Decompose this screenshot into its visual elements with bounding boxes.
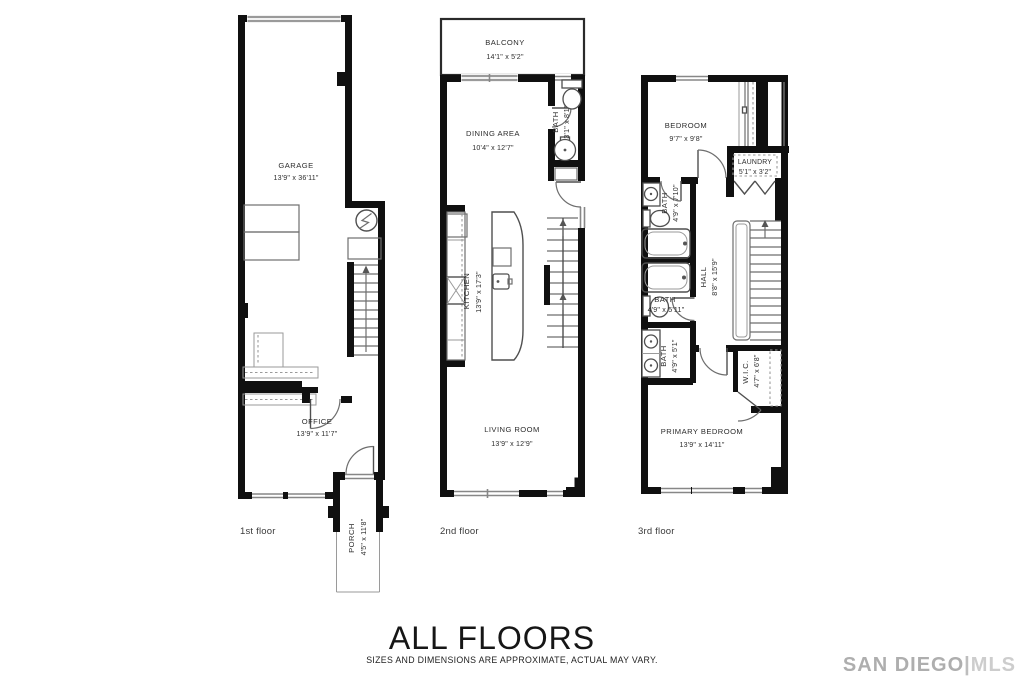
front-door-arc: [346, 446, 374, 474]
disclaimer-text: SIZES AND DIMENSIONS ARE APPROXIMATE, AC…: [366, 655, 658, 665]
bifold-doors-icon: [734, 181, 775, 194]
wall-notch: [337, 72, 349, 86]
living-room-dims: 13'9" x 12'9": [491, 440, 533, 448]
sink-icon: [555, 137, 576, 161]
watermark-suffix: MLS: [971, 654, 1016, 676]
window-opening: [288, 491, 325, 500]
window-opening: [661, 486, 691, 495]
bath-middle-room-dims: 4'9" x 5'11": [648, 306, 685, 314]
title-block: ALL FLOORS SIZES AND DIMENSIONS ARE APPR…: [366, 620, 658, 665]
hall-room-label: HALL: [699, 267, 708, 288]
closet-sliding-doors: [739, 82, 753, 146]
dining-area-room-label: DINING AREA: [466, 129, 520, 138]
window-opening: [454, 489, 519, 498]
sink-icon: [643, 183, 660, 206]
window-opening: [547, 489, 563, 498]
garage-room-dims: 13'9" x 36'11": [273, 174, 318, 182]
bedroom-room-dims: 9'7" x 9'8": [669, 135, 702, 143]
porch-structure: [328, 472, 389, 592]
balcony-room-dims: 14'1" x 5'2": [486, 53, 524, 61]
island-sink-icon: [493, 274, 512, 289]
double-vanity-icon: [642, 330, 660, 377]
first-floor-label: 1st floor: [240, 526, 276, 537]
toilet-icon: [562, 80, 582, 109]
staircase: [544, 218, 578, 348]
hall-room-dims: 8'8" x 15'9": [711, 258, 719, 296]
first-floor-plan: GARAGE 13'9" x 36'11" OFFICE 13'9" x 11'…: [240, 14, 389, 592]
page-title: ALL FLOORS: [389, 620, 595, 656]
door-opening: [578, 181, 587, 207]
primary-bedroom-door-arc: [700, 348, 727, 375]
linen-closet: [555, 168, 577, 180]
floor-plan-canvas: GARAGE 13'9" x 36'11" OFFICE 13'9" x 11'…: [0, 0, 1024, 683]
window-opening: [745, 486, 762, 495]
porch-room-label: PORCH: [347, 523, 356, 553]
exterior-recess: [768, 82, 782, 146]
water-heater-icon: [356, 210, 377, 231]
garage-room-label: GARAGE: [278, 161, 313, 170]
dining-area-room-dims: 10'4" x 12'7": [472, 144, 514, 152]
front-door-opening: [345, 472, 375, 481]
window-opening: [676, 74, 708, 83]
wall-corner-block: [771, 467, 782, 492]
bath-upper-room-label: BATH: [660, 192, 669, 214]
storage-cabinets: [244, 205, 299, 260]
bedroom-door-arc: [698, 150, 726, 178]
entry-closet: [348, 238, 381, 259]
kitchen-room-dims: 13'9" x 17'3": [475, 271, 483, 313]
balcony-walls: [441, 19, 584, 75]
primary-bedroom-room-label: PRIMARY BEDROOM: [661, 427, 743, 436]
third-floor-plan: BEDROOM 9'7" x 9'8" LAUNDRY 5'1" x 3'2" …: [638, 74, 789, 537]
window-opening: [252, 491, 283, 500]
bath-lower-room-dims: 4'9" x 5'1": [671, 339, 679, 372]
laundry-room-dims: 5'1" x 3'2": [739, 169, 772, 176]
bedroom-room-label: BEDROOM: [665, 121, 707, 130]
bath-room-dims: 3'1" x 8'1": [563, 105, 571, 138]
door-opening: [689, 297, 697, 321]
office-room-label: OFFICE: [302, 417, 333, 426]
bath-upper-room-dims: 4'9" x 7'10": [672, 184, 680, 222]
second-floor-plan: BALCONY 14'1" x 5'2" DINING AREA 10'4" x…: [440, 19, 587, 537]
window-opening: [692, 486, 733, 495]
office-room-dims: 13'9" x 11'7": [297, 430, 338, 438]
second-floor-label: 2nd floor: [440, 526, 479, 537]
watermark-prefix: SAN DIEGO: [843, 654, 964, 676]
bath-middle-room-label: BATH: [654, 295, 676, 304]
kitchen-island: [492, 212, 523, 360]
balcony-room-label: BALCONY: [485, 38, 524, 47]
mls-watermark: SAN DIEGO|MLS: [843, 654, 1016, 676]
interior-wall: [693, 345, 699, 352]
door-opening: [660, 176, 681, 185]
wic-room-dims: 4'7" x 6'8": [753, 354, 761, 387]
living-room-label: LIVING ROOM: [484, 425, 540, 434]
kitchen-room-label: KITCHEN: [462, 273, 471, 309]
wic-shelf: [770, 350, 781, 406]
third-floor-label: 3rd floor: [638, 526, 675, 537]
stair-up-arrow: [363, 266, 370, 274]
laundry-room-label: LAUNDRY: [738, 159, 772, 166]
bathtub-icon: [642, 263, 690, 292]
interior-wall: [726, 177, 734, 184]
hall-door-arc: [556, 182, 581, 207]
watermark-separator: |: [964, 654, 971, 676]
bath-room-label: BATH: [551, 111, 560, 133]
primary-bedroom-room-dims: 13'9" x 14'11": [679, 441, 724, 449]
window-opening: [578, 204, 587, 228]
staircase: [733, 220, 781, 340]
stair-up-arrow: [560, 219, 567, 226]
staircase: [347, 262, 378, 357]
wic-room-label: W.I.C.: [741, 360, 750, 383]
floor-plan-page: GARAGE 13'9" x 36'11" OFFICE 13'9" x 11'…: [0, 0, 1024, 683]
wall-notch: [243, 303, 248, 318]
wall-corner-block: [566, 478, 585, 497]
bedroom-right-wall: [756, 82, 768, 146]
bath-lower-room-label: BATH: [659, 345, 668, 367]
wic-door-arc: [738, 392, 761, 421]
bathtub-icon: [642, 229, 690, 258]
porch-room-dims: 4'5" x 11'8": [360, 518, 368, 555]
